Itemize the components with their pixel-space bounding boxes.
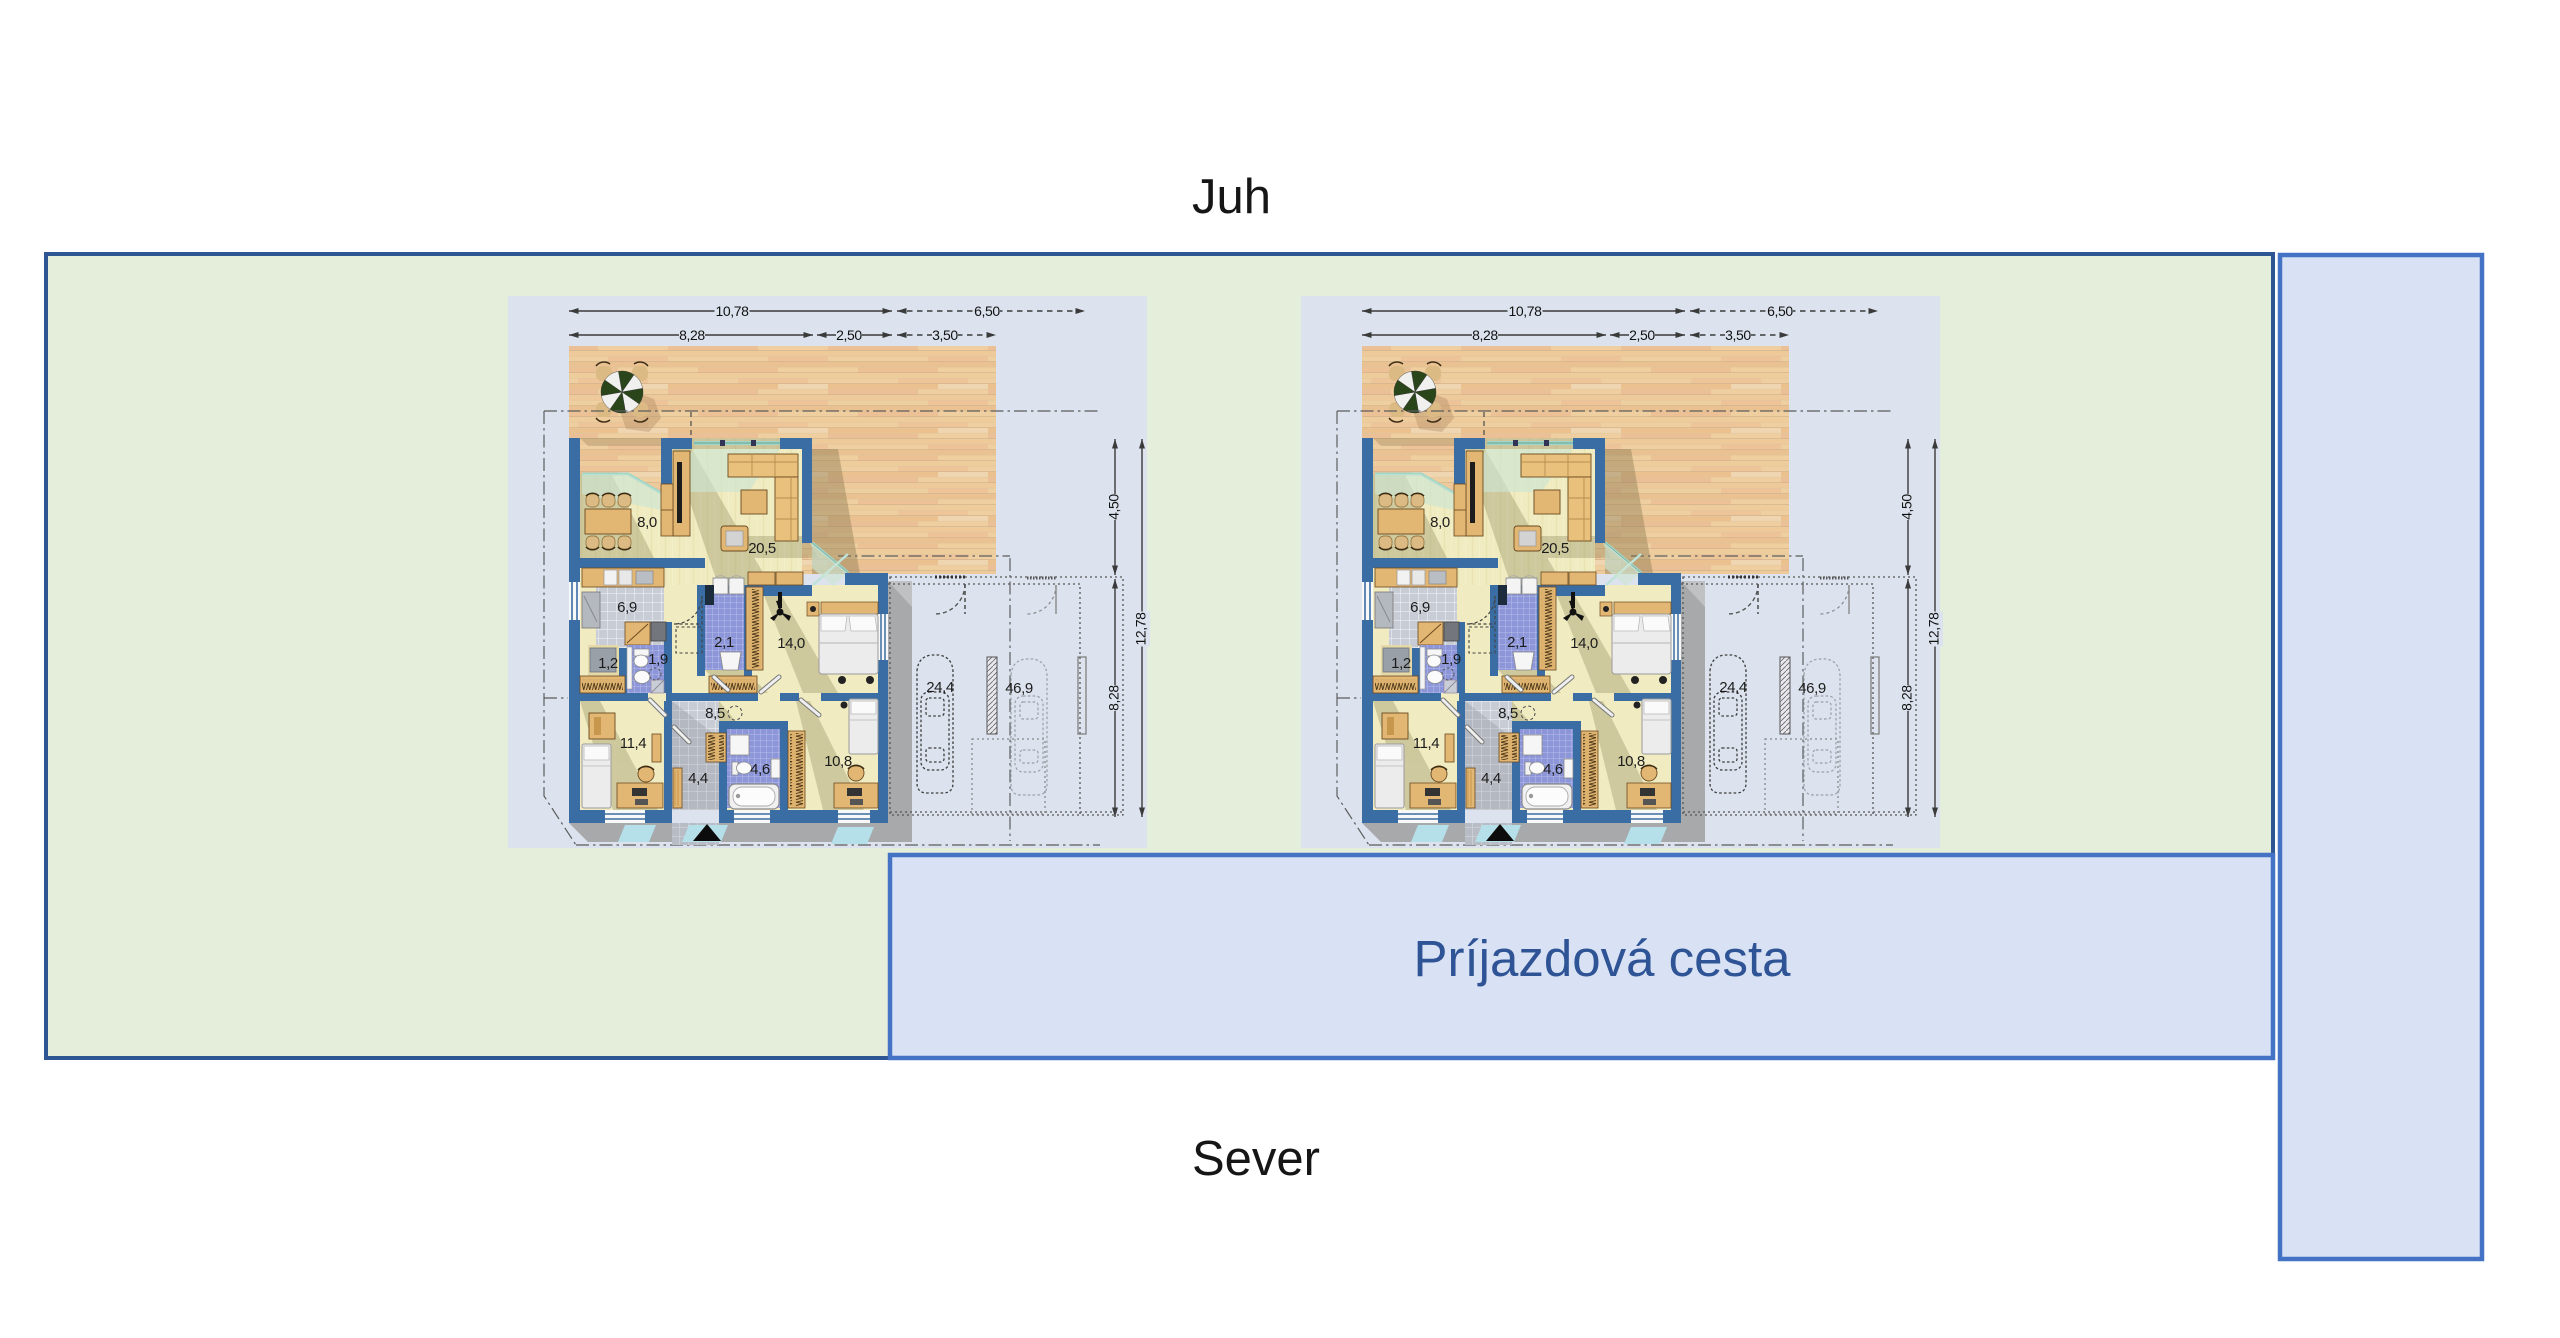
- svg-text:8,0: 8,0: [637, 514, 657, 531]
- svg-text:11,4: 11,4: [1413, 735, 1440, 752]
- svg-text:24,4: 24,4: [1719, 679, 1747, 696]
- svg-text:10,8: 10,8: [1617, 753, 1645, 770]
- svg-text:1,2: 1,2: [598, 655, 618, 672]
- svg-text:14,0: 14,0: [1570, 635, 1598, 652]
- svg-text:8,5: 8,5: [1498, 705, 1518, 722]
- svg-text:8,0: 8,0: [1430, 514, 1450, 531]
- svg-text:10,78: 10,78: [715, 303, 749, 319]
- svg-text:4,6: 4,6: [1543, 761, 1563, 778]
- svg-text:Sever: Sever: [1192, 1132, 1320, 1186]
- svg-text:2,50: 2,50: [1629, 327, 1655, 343]
- svg-text:8,28: 8,28: [1899, 685, 1915, 711]
- svg-text:6,9: 6,9: [617, 599, 637, 616]
- svg-text:6,9: 6,9: [1410, 599, 1430, 616]
- svg-text:4,6: 4,6: [750, 761, 770, 778]
- svg-text:6,50: 6,50: [1767, 303, 1793, 319]
- svg-text:Juh: Juh: [1192, 170, 1271, 224]
- svg-text:8,28: 8,28: [679, 327, 705, 343]
- svg-text:1,2: 1,2: [1391, 655, 1411, 672]
- svg-text:3,50: 3,50: [1725, 327, 1751, 343]
- svg-text:8,28: 8,28: [1472, 327, 1498, 343]
- svg-text:24,4: 24,4: [926, 679, 954, 696]
- svg-text:3,50: 3,50: [932, 327, 958, 343]
- svg-text:Príjazdová cesta: Príjazdová cesta: [1413, 930, 1791, 987]
- svg-text:4,50: 4,50: [1106, 494, 1122, 520]
- svg-text:8,28: 8,28: [1106, 685, 1122, 711]
- svg-text:4,4: 4,4: [688, 770, 708, 787]
- svg-text:10,8: 10,8: [824, 753, 852, 770]
- svg-text:11,4: 11,4: [620, 735, 647, 752]
- svg-text:1,9: 1,9: [648, 651, 668, 668]
- svg-text:20,5: 20,5: [1541, 540, 1569, 557]
- svg-text:4,50: 4,50: [1899, 494, 1915, 520]
- svg-text:12,78: 12,78: [1926, 612, 1942, 646]
- svg-text:8,5: 8,5: [705, 705, 725, 722]
- svg-text:46,9: 46,9: [1005, 680, 1033, 697]
- svg-text:46,9: 46,9: [1798, 680, 1826, 697]
- svg-text:6,50: 6,50: [974, 303, 1000, 319]
- svg-text:10,78: 10,78: [1508, 303, 1542, 319]
- svg-text:4,4: 4,4: [1481, 770, 1501, 787]
- svg-text:1,9: 1,9: [1441, 651, 1461, 668]
- svg-text:2,1: 2,1: [714, 634, 734, 651]
- svg-text:2,1: 2,1: [1507, 634, 1527, 651]
- svg-text:20,5: 20,5: [748, 540, 776, 557]
- svg-text:12,78: 12,78: [1133, 612, 1149, 646]
- svg-text:2,50: 2,50: [836, 327, 862, 343]
- svg-text:14,0: 14,0: [777, 635, 805, 652]
